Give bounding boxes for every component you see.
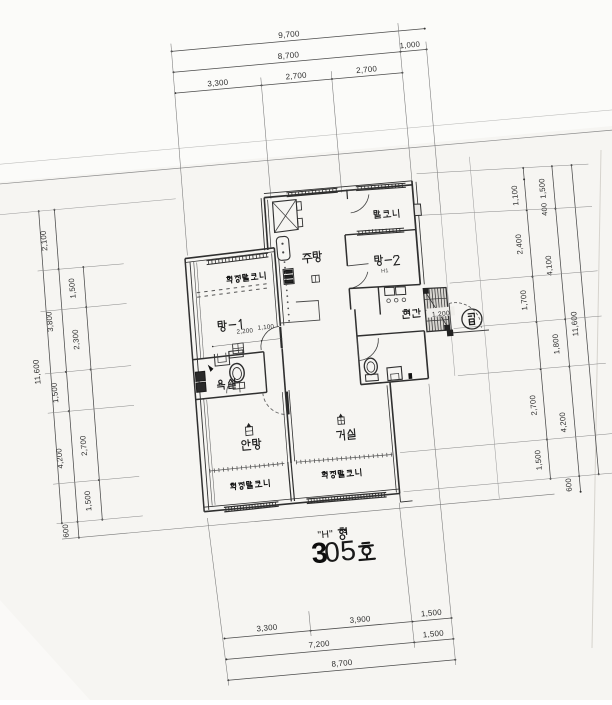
svg-text:H1: H1 xyxy=(381,268,389,275)
svg-text:2,400: 2,400 xyxy=(514,233,525,255)
svg-text:1,500: 1,500 xyxy=(422,629,444,640)
svg-text:1,500: 1,500 xyxy=(533,449,544,471)
svg-text:600: 600 xyxy=(564,477,574,492)
svg-text:600: 600 xyxy=(61,523,71,538)
svg-text:7,200: 7,200 xyxy=(308,639,330,650)
svg-text:1,500: 1,500 xyxy=(537,177,548,199)
svg-text:3,800: 3,800 xyxy=(44,311,55,333)
svg-text:3,300: 3,300 xyxy=(207,78,229,89)
svg-text:05: 05 xyxy=(323,534,358,568)
svg-text:1,800: 1,800 xyxy=(551,333,562,355)
svg-text:4,200: 4,200 xyxy=(54,447,65,469)
svg-text:3,900: 3,900 xyxy=(349,614,371,625)
svg-text:2,700: 2,700 xyxy=(78,435,89,457)
svg-text:2,700: 2,700 xyxy=(528,394,539,416)
svg-text:2,300: 2,300 xyxy=(71,328,82,350)
svg-text:1,500: 1,500 xyxy=(420,608,442,619)
svg-text:1,500: 1,500 xyxy=(49,382,60,404)
svg-text:4,100: 4,100 xyxy=(544,254,555,276)
svg-text:2,700: 2,700 xyxy=(285,71,307,82)
svg-text:1,500: 1,500 xyxy=(83,490,94,512)
svg-text:1,700: 1,700 xyxy=(519,289,530,311)
svg-text:1,000: 1,000 xyxy=(399,40,421,51)
svg-text:4,200: 4,200 xyxy=(558,411,569,433)
svg-text:3,300: 3,300 xyxy=(256,623,278,634)
svg-text:8,700: 8,700 xyxy=(331,658,353,669)
svg-text:2,700: 2,700 xyxy=(356,64,378,75)
svg-text:1,100: 1,100 xyxy=(510,184,521,206)
svg-text:1,500: 1,500 xyxy=(67,277,78,299)
